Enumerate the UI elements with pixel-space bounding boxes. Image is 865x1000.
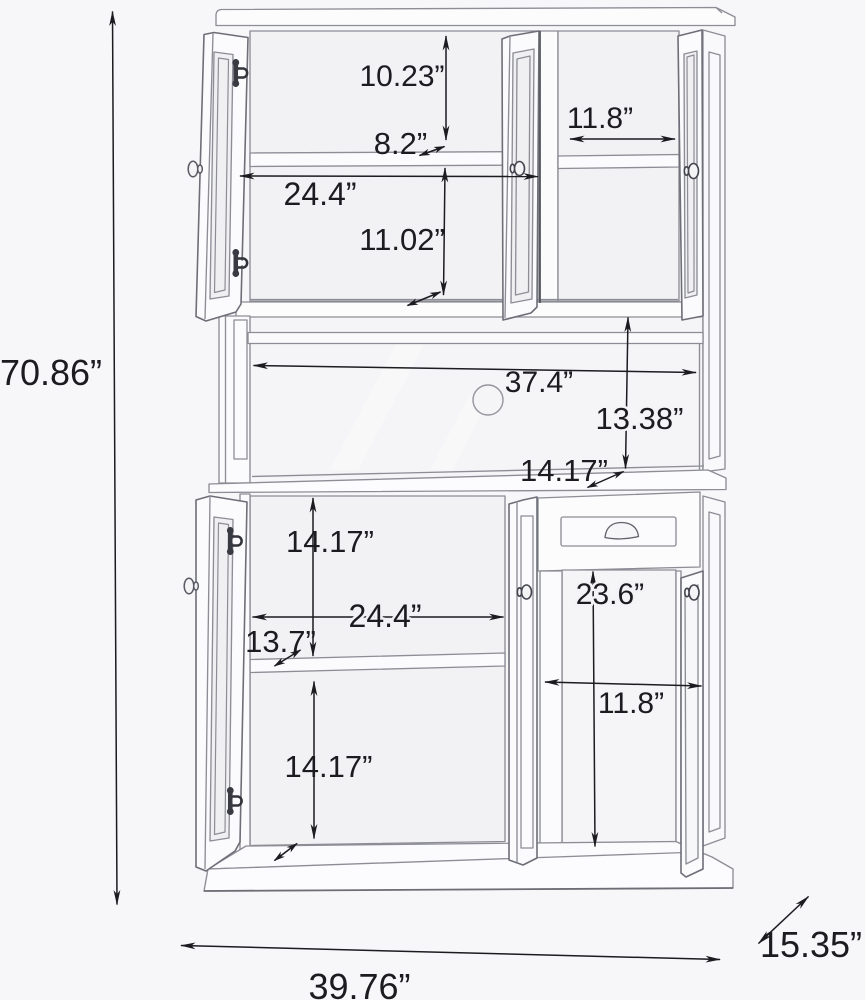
svg-text:14.17”: 14.17” [286, 524, 374, 559]
svg-text:24.4”: 24.4” [284, 176, 357, 212]
svg-text:11.02”: 11.02” [359, 222, 445, 257]
svg-text:14.17”: 14.17” [285, 749, 373, 784]
svg-text:13.7”: 13.7” [245, 624, 316, 659]
svg-text:37.4”: 37.4” [505, 366, 573, 399]
svg-text:23.6”: 23.6” [576, 578, 644, 611]
svg-text:8.2”: 8.2” [374, 126, 427, 161]
svg-text:11.8”: 11.8” [567, 102, 633, 135]
svg-text:10.23”: 10.23” [359, 60, 444, 93]
svg-text:39.76”: 39.76” [308, 966, 410, 1000]
svg-text:24.4”: 24.4” [349, 598, 422, 634]
svg-text:11.8”: 11.8” [598, 687, 664, 720]
svg-text:13.38”: 13.38” [596, 401, 684, 436]
svg-text:15.35”: 15.35” [760, 924, 862, 965]
svg-text:14.17”: 14.17” [520, 453, 608, 488]
svg-text:70.86”: 70.86” [0, 352, 102, 393]
